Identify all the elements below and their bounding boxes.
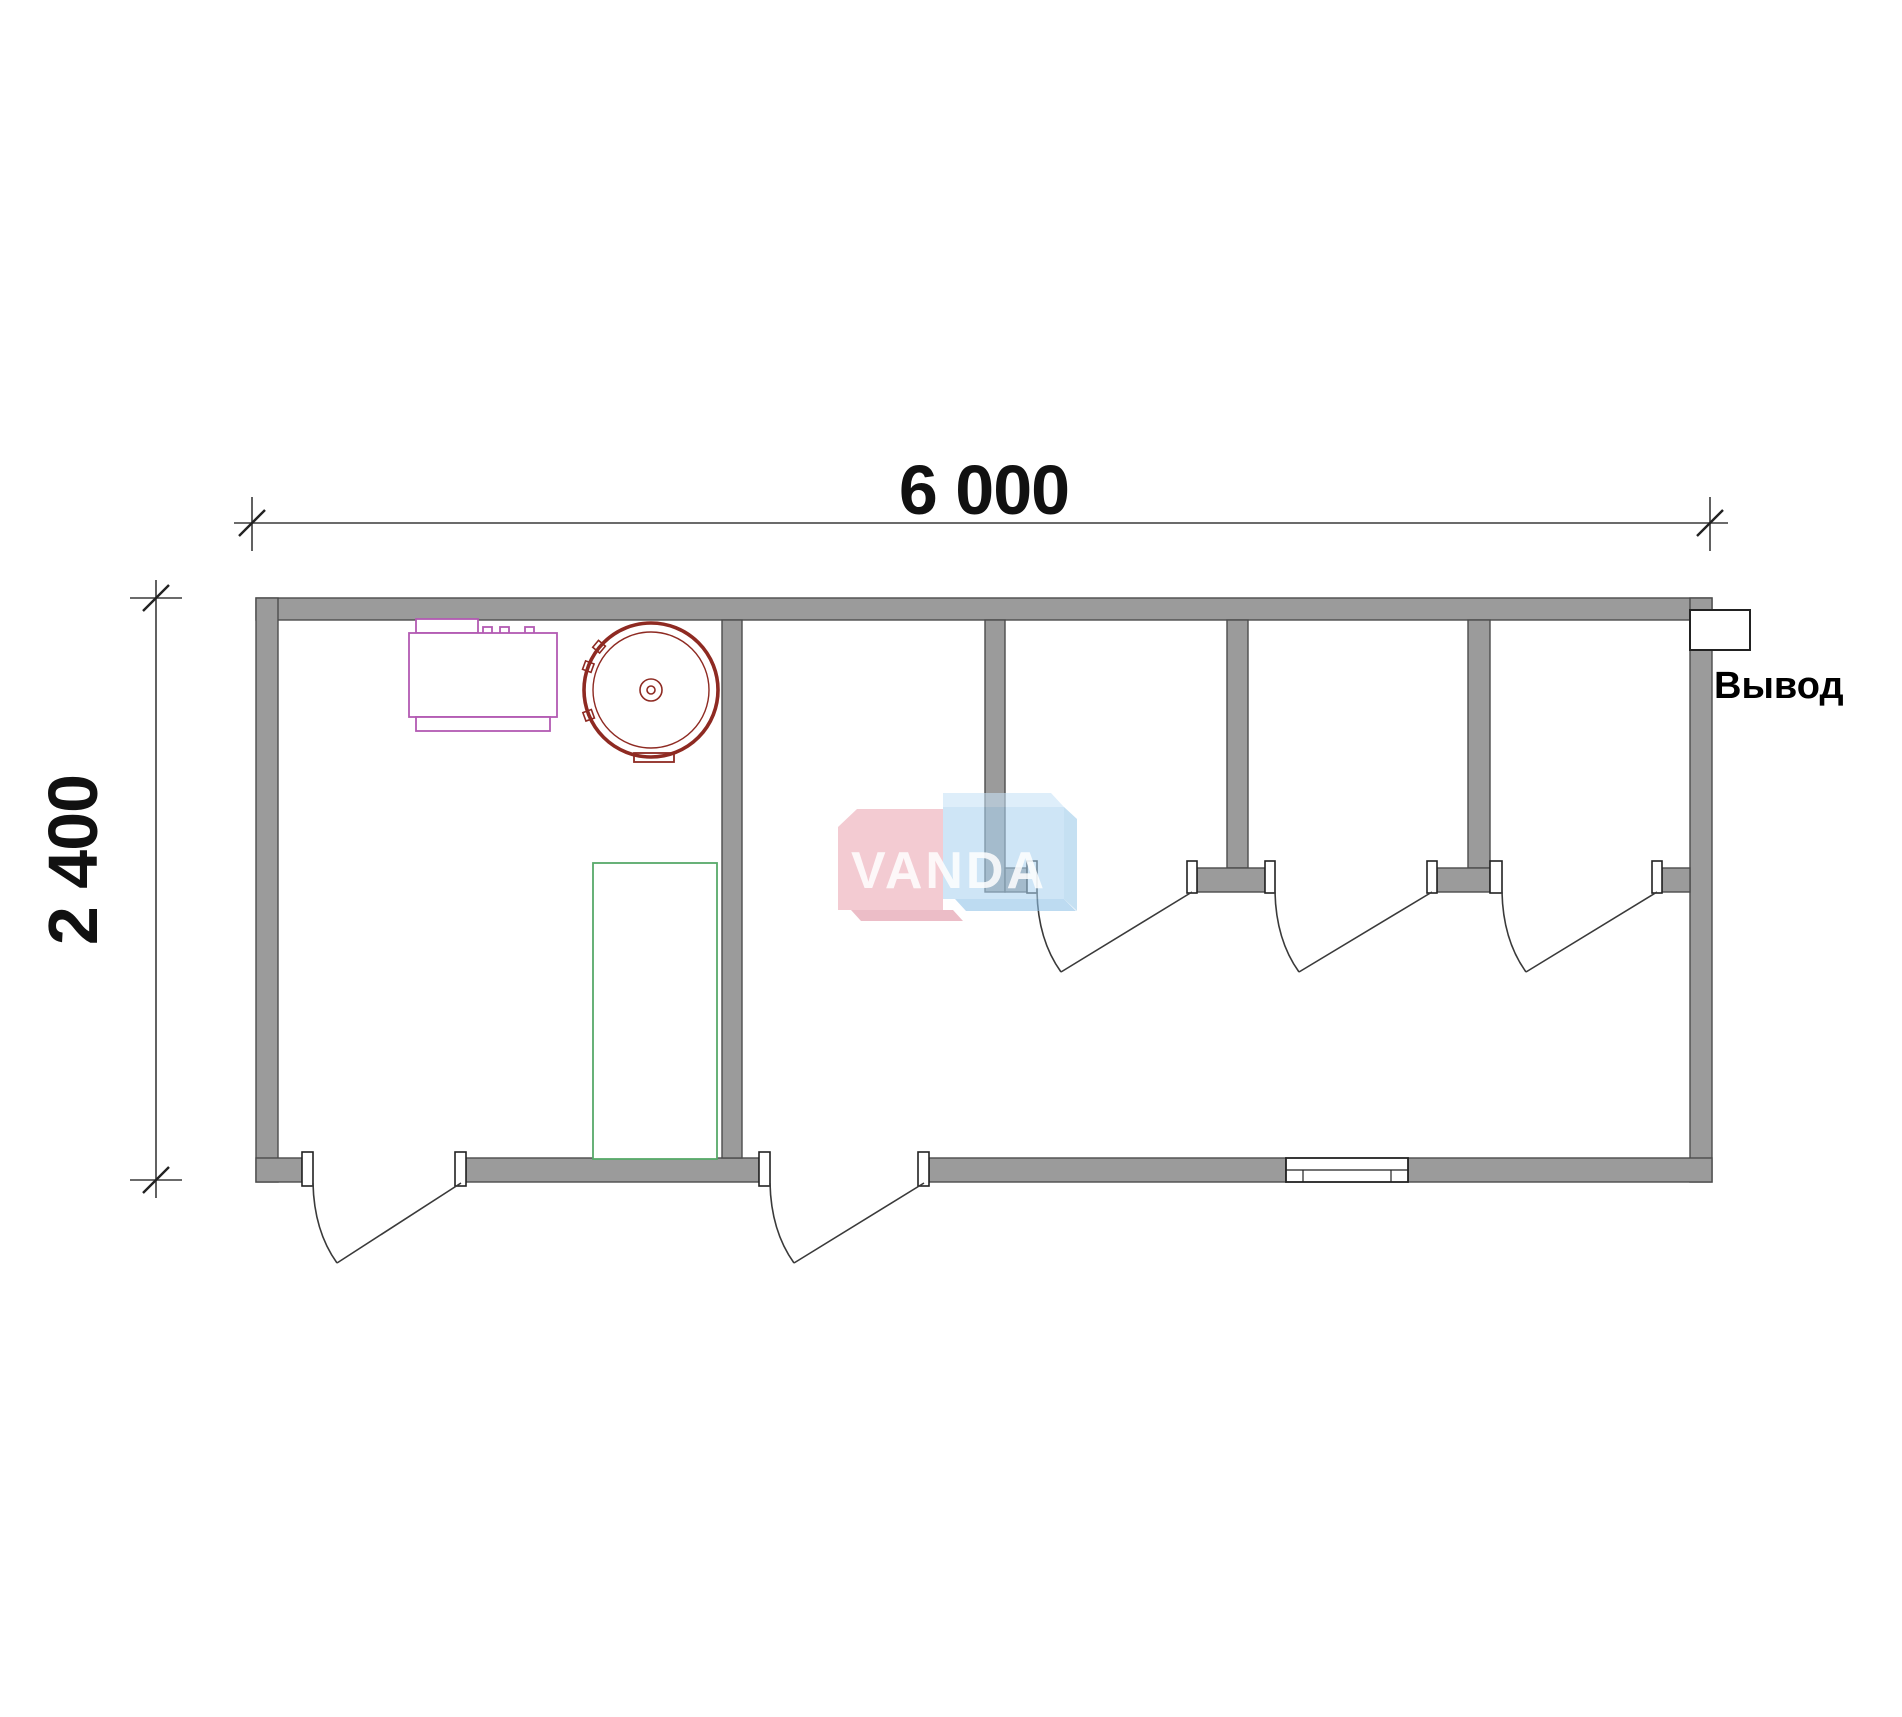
partition-technical-washroom <box>722 620 742 1158</box>
dimension-top: 6 000 <box>234 451 1728 551</box>
stall3-jamb-left <box>1490 861 1502 893</box>
floor-plan-page: 6 000 2 400 <box>0 0 1902 1717</box>
stall3-jamb-right <box>1652 861 1662 893</box>
water-heater-inner-ring <box>593 632 709 748</box>
water-heater-outer-ring <box>584 623 718 757</box>
boiler-base <box>416 717 550 731</box>
entry-door-2-swing-arc <box>770 1183 794 1263</box>
outlet-label: Вывод <box>1714 665 1844 707</box>
water-heater-tank <box>583 623 718 762</box>
stall-door-3-leaf <box>1526 892 1657 972</box>
stall-door-2-swing-arc <box>1275 892 1299 972</box>
dimension-left-label: 2 400 <box>34 775 112 945</box>
entry-door-2-leaf <box>794 1183 924 1263</box>
boiler-unit <box>409 619 557 731</box>
watermark-blue-top <box>943 793 1064 807</box>
wall-bottom-seg4 <box>1408 1158 1712 1182</box>
wall-bottom-seg2 <box>466 1158 759 1182</box>
watermark: VANDA <box>838 793 1077 921</box>
floor-plan-drawing: 6 000 2 400 <box>0 0 1902 1717</box>
window-bottom <box>1286 1158 1408 1182</box>
watermark-blue-side <box>1064 807 1077 911</box>
stall-door-1-leaf <box>1061 892 1192 972</box>
entry-door-1-swing-arc <box>313 1183 337 1263</box>
stall3-front-stub-left <box>1437 868 1490 892</box>
wall-top <box>256 598 1712 620</box>
watermark-blue-shadow <box>955 899 1076 911</box>
utility-outlet: Вывод <box>1690 610 1844 707</box>
stall2-jamb-right <box>1427 861 1437 893</box>
door-swings <box>313 892 1657 1263</box>
entry-door-1-leaf <box>337 1183 461 1263</box>
stall2-jamb-left <box>1265 861 1275 893</box>
wall-right <box>1690 598 1712 1182</box>
entry2-jamb-left <box>759 1152 770 1186</box>
water-heater-cap-dot <box>647 686 655 694</box>
wall-bottom-seg3 <box>929 1158 1286 1182</box>
partition-stall2-stall3 <box>1468 620 1490 868</box>
stall1-jamb-right <box>1187 861 1197 893</box>
entry2-jamb-right <box>918 1152 929 1186</box>
stall3-front-stub-right <box>1662 868 1690 892</box>
water-heater-cap <box>640 679 662 701</box>
watermark-text: VANDA <box>851 842 1047 900</box>
dimension-left: 2 400 <box>34 580 182 1198</box>
stall-door-2-leaf <box>1299 892 1432 972</box>
watermark-pink-shadow <box>851 910 963 921</box>
entry1-jamb-left <box>302 1152 313 1186</box>
entry1-jamb-right <box>455 1152 466 1186</box>
wall-bottom-seg1 <box>256 1158 302 1182</box>
wall-left <box>256 598 278 1182</box>
outlet-box <box>1690 610 1750 650</box>
boiler-body <box>409 633 557 717</box>
partition-stall1-stall2 <box>1227 620 1248 868</box>
boiler-wall-tab <box>416 619 478 633</box>
stall2-front-stub <box>1197 868 1265 892</box>
stall-door-3-swing-arc <box>1502 892 1526 972</box>
dimension-top-label: 6 000 <box>899 451 1069 529</box>
shower-tray <box>593 863 717 1159</box>
